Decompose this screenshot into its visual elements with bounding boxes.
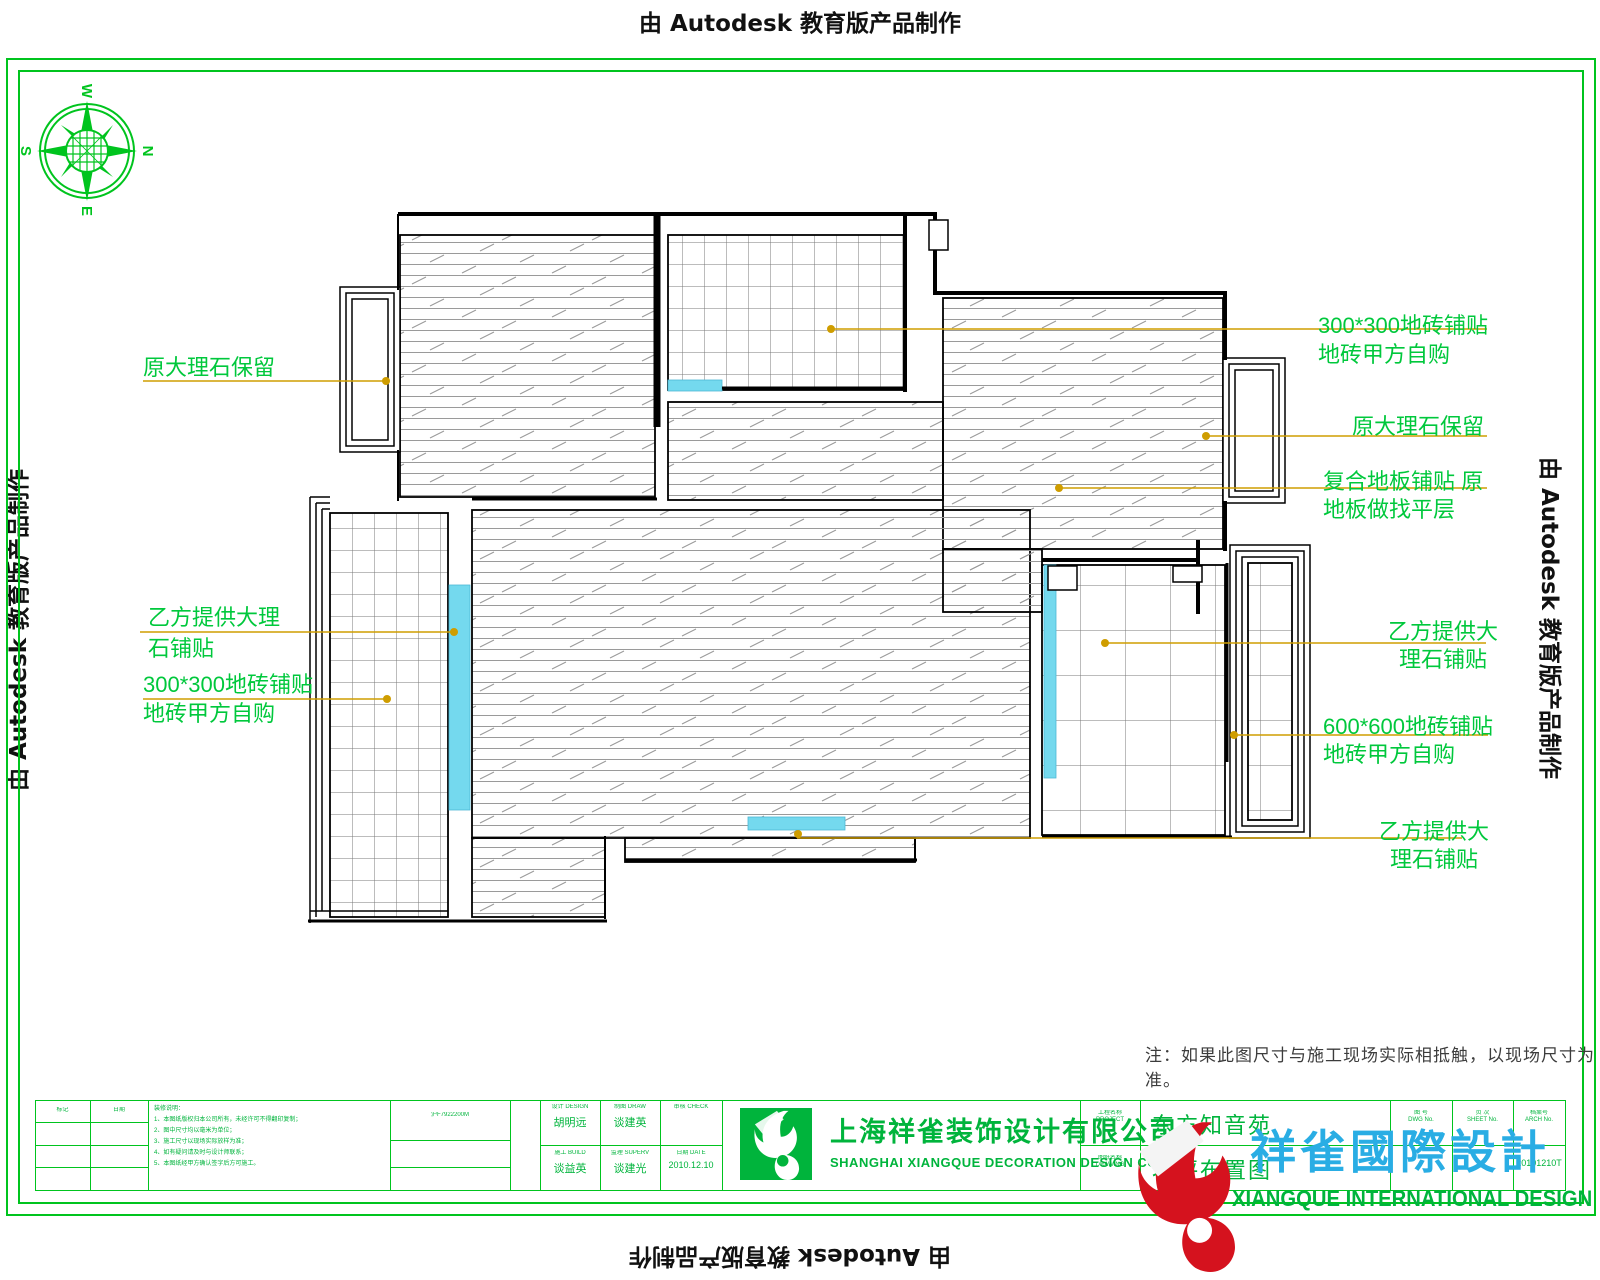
annotation-right-party-b-marble-1: 乙方提供大 理石铺贴 [1388,618,1498,674]
annotation-text: 地砖甲方自购 [1318,340,1488,369]
xiangque-logo-text-cn: 祥雀國際設計 [1250,1116,1550,1182]
annotation-text: 乙方提供大 [1378,818,1490,846]
annotation-text: 乙方提供大理 [148,602,280,633]
annotation-left-marble: 原大理石保留 [143,354,275,382]
personnel-drafter: 制图 DRAW 谈建英 [600,1104,660,1130]
title-block-notes: 装修说明： 1、本图纸版权归本公司所有，未经许可不得翻印复制； 2、图中尺寸均以… [154,1104,386,1170]
room-hall [668,402,943,500]
site-dimension-note: 注：如果此图尺寸与施工现场实际相抵触，以现场尺寸为准。 [1145,1041,1600,1091]
floor-plan [308,214,1310,923]
room-corridor [943,549,1042,612]
annotation-left-party-b-marble: 乙方提供大理 石铺贴 [148,602,280,664]
rev-col2-header: 日期 [90,1107,148,1114]
annotation-text: 理石铺贴 [1378,846,1490,874]
svg-text:N: N [139,146,156,157]
annotation-right-tile600: 600*600地砖铺贴 地砖甲方自购 [1323,713,1493,769]
compass-rose: W N E S [17,84,156,216]
annotation-text: 理石铺贴 [1388,646,1498,674]
annotation-text: 地砖甲方自购 [1323,741,1493,769]
annotation-text: 乙方提供大 [1388,618,1498,646]
company-logo [740,1108,812,1180]
svg-text:W: W [78,84,95,99]
xiangque-logo-bird [1133,1108,1237,1280]
room-bedroom-left [400,235,655,497]
annotation-text: 原大理石保留 [143,354,275,382]
annotation-text: 复合地板铺贴 原 [1323,468,1483,496]
annotation-right-tile300: 300*300地砖铺贴 地砖甲方自购 [1318,311,1488,369]
balcony-right [1230,545,1310,838]
annotation-right-party-b-marble-2: 乙方提供大 理石铺贴 [1378,818,1490,874]
xiangque-logo-text-en: XIANGQUE INTERNATIONAL DESIGN [1232,1186,1592,1212]
personnel-date: 日期 DATE 2010.12.10 [660,1150,722,1170]
room-living-nook [625,838,915,862]
room-kitchen [330,513,448,917]
cert-number: 沪F7922200M [390,1112,510,1119]
svg-text:E: E [78,206,95,216]
annotation-text: 地砖甲方自购 [143,699,313,728]
personnel-builder: 施工 BUILD 谈益英 [540,1150,600,1176]
svg-text:S: S [17,146,34,156]
annotation-right-marble: 原大理石保留 [1352,413,1484,441]
annotation-right-laminate: 复合地板铺贴 原 地板做找平层 [1323,468,1483,524]
project-label: 工程名称 PROJECT [1080,1110,1140,1124]
company-logo-bird [740,1108,812,1180]
annotation-text: 300*300地砖铺贴 [143,670,313,699]
annotation-text: 原大理石保留 [1352,413,1484,441]
room-bathroom-top [668,235,905,390]
drawing-label: 图纸名称 DRAWING [1080,1155,1140,1169]
personnel-designer: 设计 DESIGN 胡明远 [540,1104,600,1130]
annotation-text: 600*600地砖铺贴 [1323,713,1493,741]
personnel-supervisor: 监理 SUPERV 谈建光 [600,1150,660,1176]
annotation-text: 300*300地砖铺贴 [1318,311,1488,340]
rev-col1-header: 标记 [35,1107,90,1114]
drawing-sheet: 由 Autodesk 教育版产品制作 由 Autodesk 教育版产品制作 由 … [0,0,1600,1280]
room-living-ext [472,838,605,917]
bay-window-left [340,287,400,452]
bay-window-right [1223,358,1285,503]
personnel-checker: 审核 CHECK [660,1104,722,1114]
annotation-text: 地板做找平层 [1323,496,1483,524]
annotation-text: 石铺贴 [148,633,280,664]
annotation-left-tile300: 300*300地砖铺贴 地砖甲方自购 [143,670,313,728]
